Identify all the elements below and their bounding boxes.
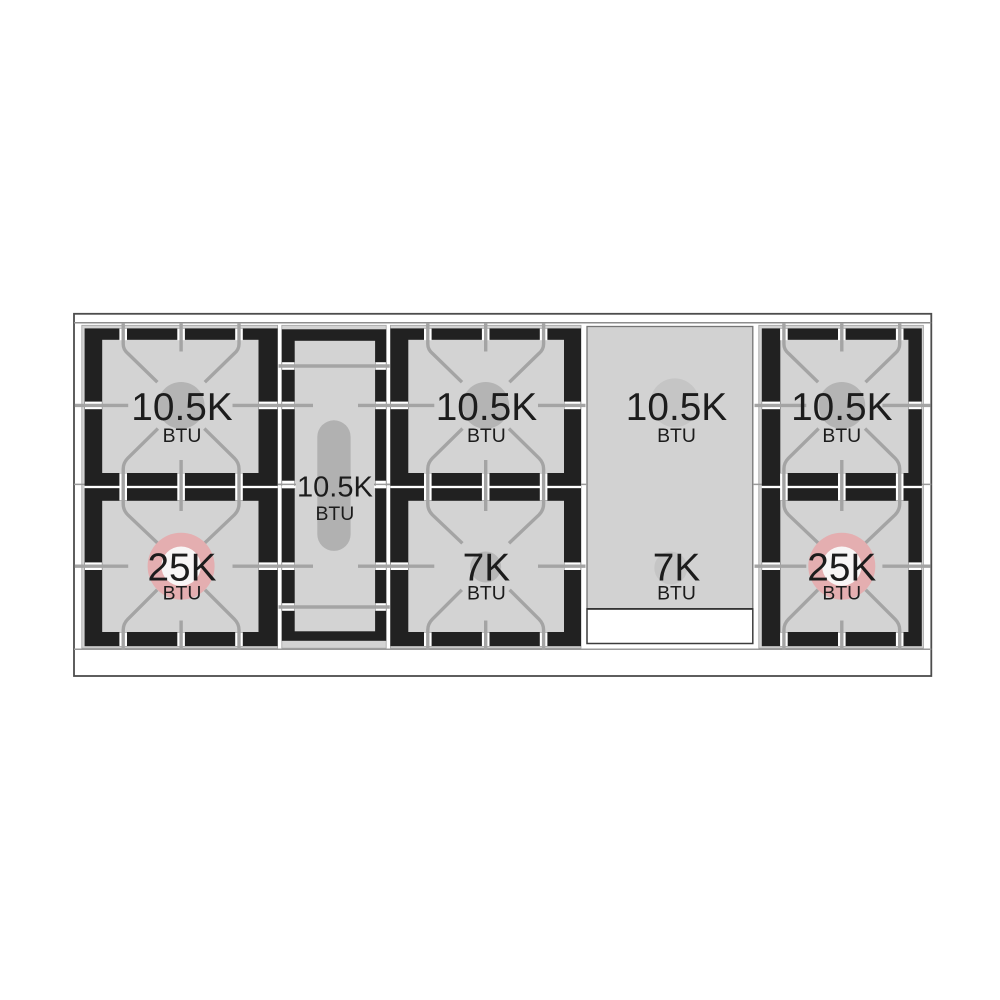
svg-text:BTU: BTU (822, 425, 861, 447)
svg-text:BTU: BTU (163, 425, 202, 447)
svg-text:10.5K: 10.5K (131, 386, 233, 429)
svg-text:10.5K: 10.5K (626, 386, 728, 429)
svg-text:BTU: BTU (163, 583, 202, 605)
svg-text:10.5K: 10.5K (791, 386, 893, 429)
svg-text:BTU: BTU (657, 583, 696, 605)
svg-text:BTU: BTU (467, 583, 506, 605)
svg-text:10.5K: 10.5K (436, 386, 538, 429)
svg-text:BTU: BTU (316, 503, 355, 525)
svg-text:BTU: BTU (467, 425, 506, 447)
svg-text:10.5K: 10.5K (297, 472, 373, 504)
svg-text:BTU: BTU (822, 583, 861, 605)
svg-text:BTU: BTU (657, 425, 696, 447)
